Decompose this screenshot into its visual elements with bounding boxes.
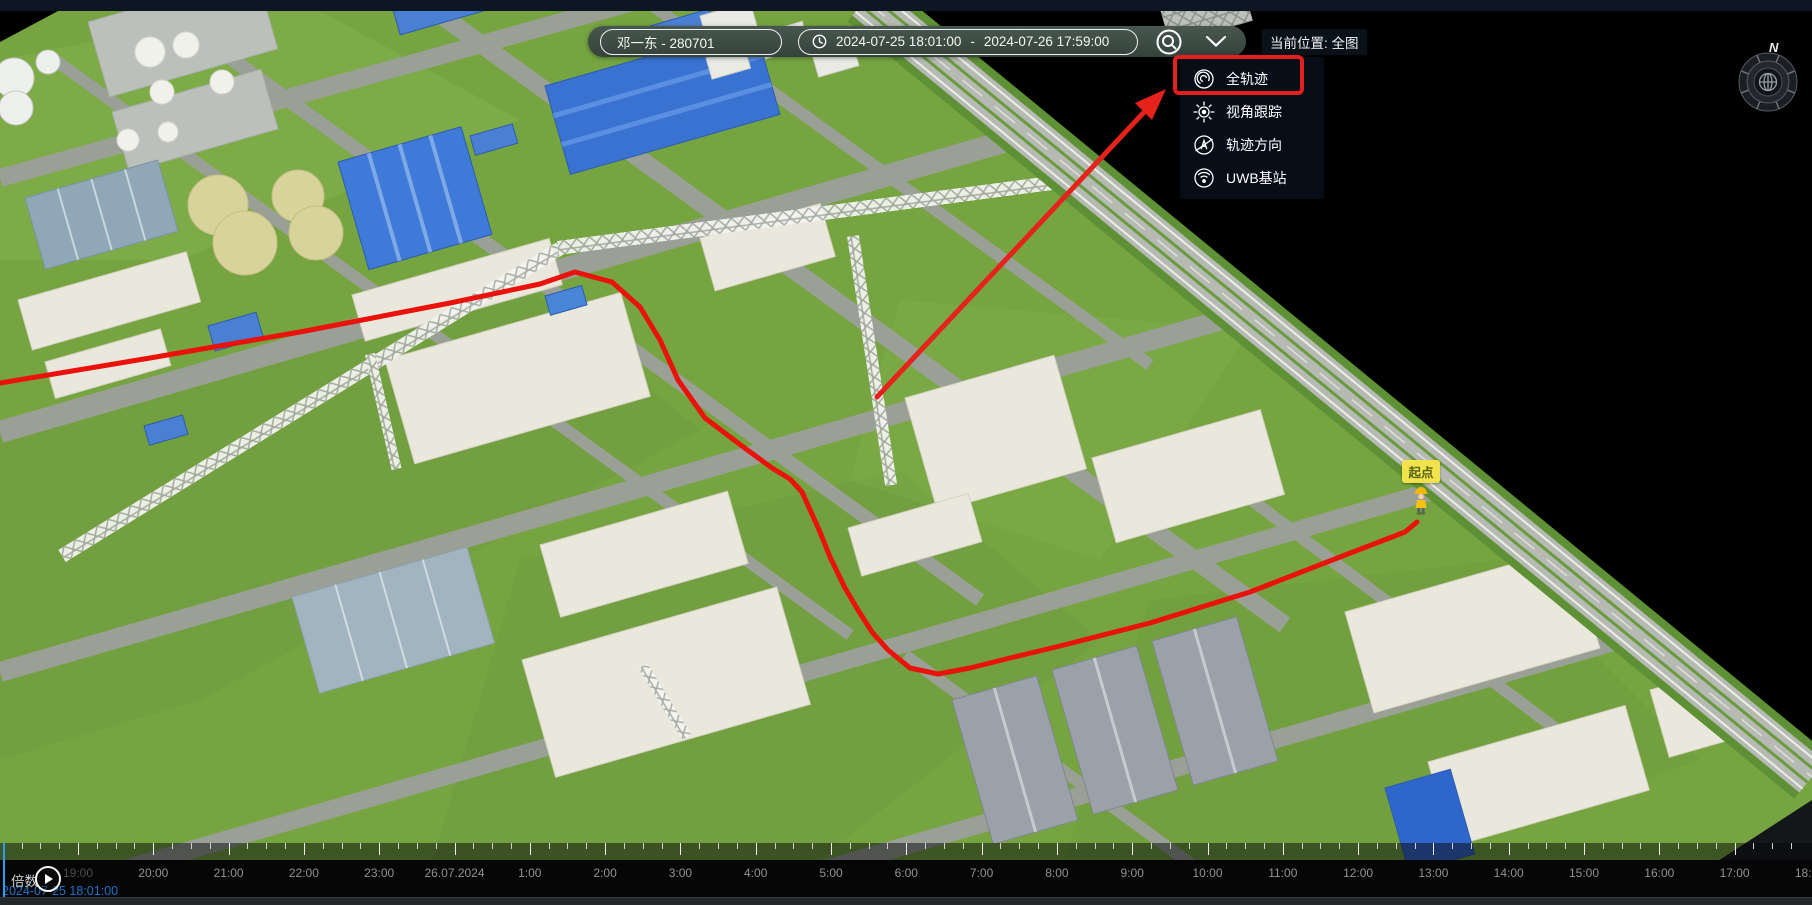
menu-item-label: UWB基站	[1226, 168, 1287, 188]
compass-north-label: N	[1769, 40, 1778, 55]
menu-item-uwb-base-station[interactable]: UWB基站	[1180, 161, 1324, 194]
locate-button[interactable]	[1154, 27, 1184, 57]
play-icon	[45, 874, 53, 884]
worker-figure-icon	[1413, 485, 1429, 515]
timeline-hour-label: 2:00	[593, 866, 616, 880]
menu-item-trajectory-direction[interactable]: 轨迹方向	[1180, 128, 1324, 161]
menu-item-label: 视角跟踪	[1226, 102, 1282, 122]
compass-icon	[1736, 50, 1800, 114]
timeline-ticks	[0, 843, 1812, 860]
compass[interactable]: N	[1736, 50, 1800, 114]
timeline-hour-label: 1:00	[518, 866, 541, 880]
menu-item-view-tracking[interactable]: 视角跟踪	[1180, 95, 1324, 128]
timeline-hour-label: 23:00	[364, 866, 394, 880]
target-icon	[1155, 28, 1183, 56]
timeline-hour-label: 22:00	[289, 866, 319, 880]
current-location-label: 当前位置: 全图	[1262, 29, 1367, 55]
menu-item-label: 轨迹方向	[1226, 135, 1282, 155]
person-select[interactable]: 邓一东 - 280701	[600, 29, 782, 55]
timeline-hour-label: 13:00	[1418, 866, 1448, 880]
play-button[interactable]	[35, 866, 61, 892]
uwb-base-station-icon	[1192, 166, 1216, 190]
timeline-hour-label: 20:00	[138, 866, 168, 880]
top-strip	[0, 0, 1812, 11]
timeline-hour-label: 7:00	[970, 866, 993, 880]
timeline-hour-label: 18:00	[1795, 866, 1812, 880]
full-trajectory-icon	[1192, 67, 1216, 91]
timeline-hour-label: 11:00	[1268, 866, 1297, 880]
start-point-marker: 起点	[1398, 460, 1444, 515]
personnel-tracking-screen: 邓一东 - 280701 2024-07-25 18:01:00 - 2024-…	[0, 0, 1812, 905]
trajectory-options-menu: 全轨迹 视角跟踪 轨迹方向 UWB基站	[1180, 57, 1324, 199]
timeline-hour-label: 6:00	[895, 866, 918, 880]
time-range-picker[interactable]: 2024-07-25 18:01:00 - 2024-07-26 17:59:0…	[798, 29, 1138, 55]
bottom-strip	[0, 897, 1812, 905]
chevron-down-icon	[1206, 36, 1226, 47]
view-tracking-icon	[1192, 100, 1216, 124]
menu-item-full-trajectory[interactable]: 全轨迹	[1180, 62, 1324, 95]
dropdown-toggle-button[interactable]	[1200, 27, 1232, 57]
map-3d-view[interactable]	[0, 0, 1812, 905]
start-point-label: 起点	[1402, 460, 1439, 483]
menu-item-label: 全轨迹	[1226, 69, 1268, 89]
timeline-hour-label: 14:00	[1494, 866, 1524, 880]
timeline-hour-label: 3:00	[669, 866, 692, 880]
timeline-bar[interactable]: 19:0020:0021:0022:0023:0026.07.20241:002…	[0, 843, 1812, 905]
time-separator: -	[970, 34, 975, 49]
timeline-labels: 19:0020:0021:0022:0023:0026.07.20241:002…	[0, 860, 1812, 897]
timeline-hour-label: 21:00	[214, 866, 244, 880]
timeline-playhead[interactable]	[3, 843, 5, 897]
timeline-hour-label: 19:00	[63, 866, 93, 880]
timeline-hour-label: 16:00	[1644, 866, 1674, 880]
person-select-value: 邓一东 - 280701	[617, 32, 715, 52]
toolbar: 邓一东 - 280701 2024-07-25 18:01:00 - 2024-…	[588, 26, 1246, 57]
trajectory-direction-icon	[1192, 133, 1216, 157]
time-start: 2024-07-25 18:01:00	[836, 34, 961, 49]
timeline-hour-label: 10:00	[1192, 866, 1222, 880]
timeline-hour-label: 4:00	[744, 866, 767, 880]
timeline-hour-label: 17:00	[1720, 866, 1750, 880]
timeline-hour-label: 12:00	[1343, 866, 1373, 880]
timeline-hour-label: 9:00	[1121, 866, 1144, 880]
speed-label: 倍数	[11, 870, 38, 890]
timeline-hour-label: 5:00	[819, 866, 842, 880]
clock-icon	[812, 34, 827, 49]
timeline-hour-label: 15:00	[1569, 866, 1599, 880]
timeline-hour-label: 26.07.2024	[424, 866, 484, 880]
timeline-hour-label: 8:00	[1045, 866, 1068, 880]
time-end: 2024-07-26 17:59:00	[984, 34, 1109, 49]
